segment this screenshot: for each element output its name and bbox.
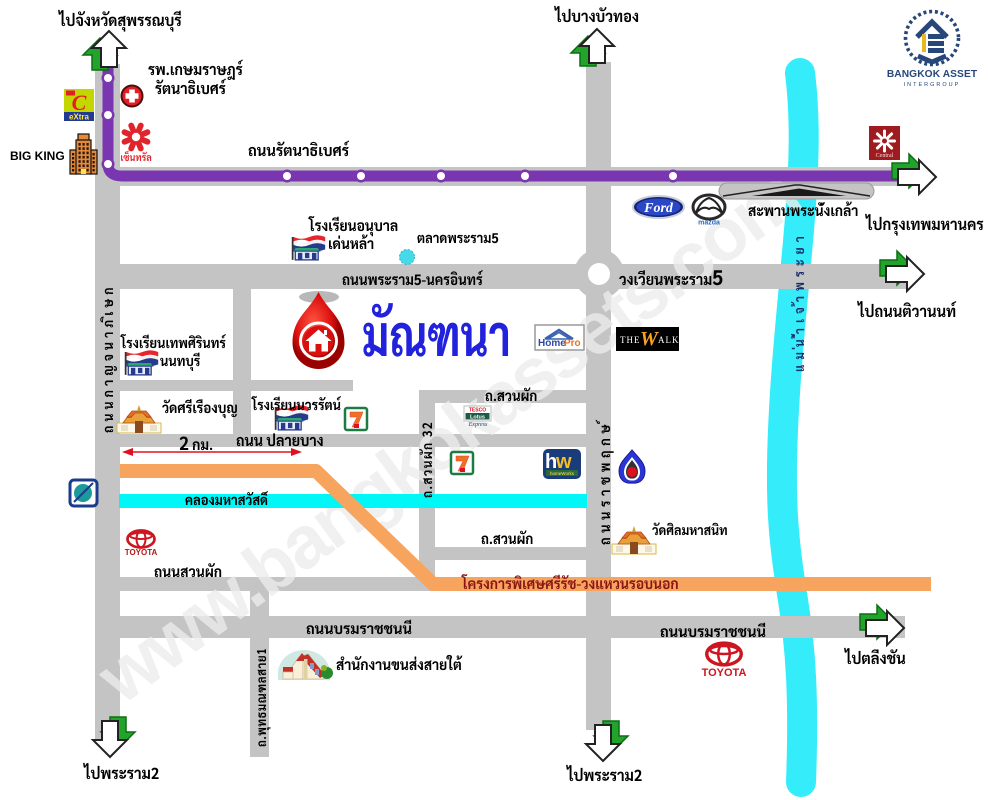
svg-text:TOYOTA: TOYOTA — [125, 548, 158, 557]
svg-text:Lotus: Lotus — [470, 415, 485, 421]
svg-text:w: w — [555, 451, 572, 473]
svg-text:Express: Express — [468, 422, 488, 428]
svg-text:Pro: Pro — [564, 338, 581, 349]
svg-text:BANGKOK ASSET: BANGKOK ASSET — [887, 69, 978, 80]
svg-text:TESCO: TESCO — [469, 408, 486, 414]
svg-text:INTERGROUP: INTERGROUP — [904, 82, 961, 88]
svg-text:ALK: ALK — [658, 335, 680, 345]
svg-text:Home: Home — [538, 338, 566, 349]
svg-text:Ford: Ford — [643, 201, 674, 216]
svg-text:W: W — [640, 328, 659, 350]
svg-text:eXtra: eXtra — [69, 113, 90, 122]
svg-text:TOYOTA: TOYOTA — [702, 667, 747, 679]
svg-text:Central: Central — [876, 153, 894, 159]
svg-text:THE: THE — [620, 335, 641, 345]
svg-text:homeWorks: homeWorks — [550, 471, 575, 476]
svg-text:BIG KING: BIG KING — [10, 149, 65, 163]
svg-text:mazda: mazda — [698, 220, 720, 227]
